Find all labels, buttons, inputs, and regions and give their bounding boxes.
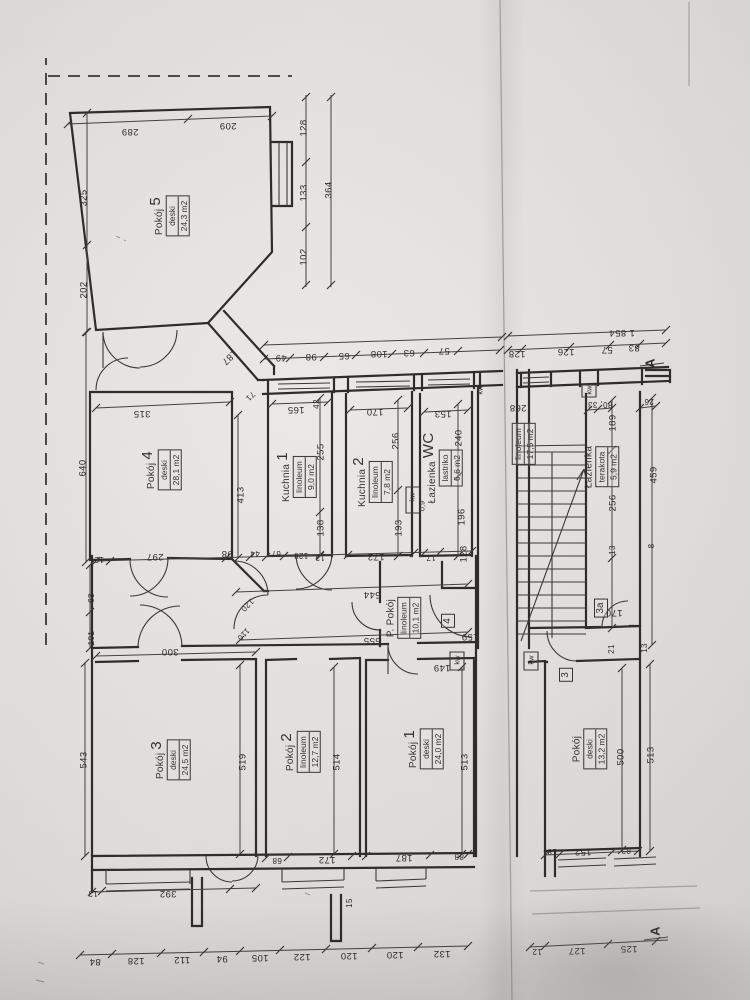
dimension-label: 126 <box>557 346 574 356</box>
plan-labels-layer: 2892091281331023643252023156404131877129… <box>0 0 750 1000</box>
dimension-label: 120 <box>239 597 255 613</box>
dimension-label: 128 <box>127 955 144 965</box>
dimension-label: 544 <box>363 589 380 599</box>
dimension-label: 202 <box>79 281 89 298</box>
dimension-label: 112 <box>174 954 190 964</box>
dimension-label: 543 <box>79 751 89 768</box>
dimension-label: 63 <box>88 593 96 603</box>
dimension-label: 68 <box>272 856 282 864</box>
room-name: Łazienka <box>584 446 594 488</box>
dimension-label: 640 <box>78 459 88 476</box>
dimension-label: 84 <box>89 956 100 966</box>
room-name: Pokój4 <box>142 450 157 491</box>
room-label-kuchnia-1: Kuchnia1linoleum9,0 m2 <box>277 452 318 502</box>
room-label-pokoj-4: Pokój4deski28,1 m2 <box>142 450 183 491</box>
room-name-text: Pokój <box>146 463 157 490</box>
room-area: 24,0 m2 <box>431 730 443 769</box>
dimension-label: 513 <box>646 746 656 763</box>
room-info-box: linoleum12,7 m2 <box>297 731 321 773</box>
dimension-label: 133 <box>299 184 309 201</box>
room-area: 17,5 m2 <box>523 424 535 464</box>
dimension-label: 315 <box>133 408 150 418</box>
room-floor-type: deski <box>584 730 595 769</box>
dimension-label: 110 <box>235 626 251 642</box>
dimension-label: 17 <box>426 553 436 561</box>
room-info-box: terakota5,9 m2 <box>595 447 619 488</box>
dimension-label: 152 <box>574 846 591 856</box>
room-info-box: lastriko6,6 m2 <box>439 450 463 487</box>
room-floor-type: deski <box>167 197 178 236</box>
room-label-pokoj-parter: Pokójdeski13,2 m2 <box>572 729 608 770</box>
room-floor-type: deski <box>168 741 179 780</box>
dimension-label: 153 <box>434 408 451 418</box>
dimension-label: 172 <box>318 854 335 864</box>
dimension-label: 13 <box>88 889 98 897</box>
dimension-label: 65 <box>338 350 349 360</box>
vent-shaft-label: kw <box>476 385 484 394</box>
dimension-label: 57 <box>601 344 612 354</box>
dimension-label: 128 <box>508 348 525 358</box>
room-floor-type: terakota <box>596 448 607 487</box>
room-label-lazienka-terakota: Łazienkaterakota5,9 m2 <box>584 446 620 488</box>
room-label-lazienka-wc: ŁazienkaWClastriko6,6 m2 <box>423 432 464 503</box>
room-name: P. Pokój <box>386 597 396 639</box>
section-marker: A <box>649 926 662 936</box>
vent-shaft-label: kw <box>408 492 416 501</box>
room-number: 2 <box>278 733 295 742</box>
dimension-label: 514 <box>332 753 342 770</box>
room-label-kuchnia-2: Kuchnia2linoleum7,8 m2 <box>353 457 394 507</box>
dimension-label: 519 <box>238 753 248 770</box>
room-area: 13,2 m2 <box>595 730 607 769</box>
dimension-label: 122 <box>293 951 310 961</box>
dimension-label: 26 <box>644 397 654 405</box>
room-label-pokoj-3: Pokój3deski24,5 m2 <box>151 740 192 781</box>
room-info-box: deski24,5 m2 <box>167 740 191 781</box>
room-number: 1 <box>401 730 418 739</box>
dimension-label: 132 <box>433 948 450 958</box>
dimension-label: 42 <box>313 399 321 409</box>
room-name-text: Pokój <box>408 742 419 769</box>
dimension-label: 138 <box>316 519 326 536</box>
room-number: 3 <box>148 741 165 750</box>
room-info-box: deski13,2 m2 <box>583 729 607 770</box>
room-info-box: deski24,0 m2 <box>420 729 444 770</box>
dimension-label: 196 <box>457 508 467 525</box>
dimension-label: 102 <box>299 248 309 265</box>
vent-shaft-label: kw <box>453 655 461 664</box>
dimension-label: 149 <box>433 662 450 672</box>
dimension-label: 44 <box>250 549 260 557</box>
room-label-pokoj-1: Pokój1deski24,0 m2 <box>404 729 445 770</box>
dimension-label: 500 <box>616 748 626 765</box>
room-floor-type: linoleum <box>398 598 409 638</box>
room-name-text: Pokój <box>285 745 296 772</box>
room-area: 9,0 m2 <box>304 457 316 497</box>
room-info-box: linoleum9,0 m2 <box>293 456 317 498</box>
room-area: 24,5 m2 <box>178 741 190 780</box>
dimension-label: 13 <box>315 553 325 561</box>
dimension-label: 459 <box>649 466 659 483</box>
room-name-text: Pokój <box>155 753 166 780</box>
room-name-text: Łazienka <box>583 446 594 488</box>
dimension-label: 128 <box>459 545 469 562</box>
room-floor-type: deski <box>421 730 432 769</box>
dimension-label: 15 <box>346 898 354 908</box>
dimension-label: 172 <box>367 551 384 561</box>
dimension-label: 67 <box>271 549 281 557</box>
room-number: 1 <box>274 452 291 461</box>
dimension-label: 18 <box>547 847 557 855</box>
dimension-label: 120 <box>340 950 357 960</box>
room-name-text: Kuchnia <box>281 464 292 502</box>
dimension-label: 170 <box>366 406 383 416</box>
room-floor-type: linoleum <box>294 457 305 497</box>
dimension-label: 268 <box>509 402 526 412</box>
dimension-label: 49 <box>275 352 286 362</box>
room-name-text: Kuchnia <box>357 469 368 507</box>
dimension-label: 187 <box>220 348 239 367</box>
dimension-label: 170 <box>605 607 622 617</box>
room-name: ŁazienkaWC <box>423 432 438 503</box>
dimension-label: 94 <box>216 953 227 963</box>
unit-number-marker: 3 <box>559 668 573 682</box>
dimension-label: 98 <box>305 351 316 361</box>
dimension-label: 13 <box>641 643 649 653</box>
dimension-label: 128 <box>299 119 309 136</box>
room-name-text: Łazienka <box>427 461 438 503</box>
dimension-label: 187 <box>395 852 412 862</box>
dimension-label: 120 <box>386 949 403 959</box>
room-number: 5 <box>147 197 164 206</box>
room-floor-type: linoleum <box>370 462 381 502</box>
dimension-label: 12 <box>532 947 542 955</box>
dimension-label: 159 <box>461 631 478 641</box>
dimension-label: 209 <box>219 120 236 130</box>
section-marker: A <box>644 358 657 368</box>
dimension-label: 255 <box>316 443 326 460</box>
room-number: 4 <box>139 451 156 460</box>
room-floor-type: lastriko <box>440 451 451 486</box>
room-label-pokoj-5: Pokój5deski24,3 m2 <box>150 196 191 237</box>
room-number: WC <box>420 432 437 458</box>
room-name: Pokój5 <box>150 196 165 237</box>
dimension-label: 300 <box>161 646 178 656</box>
dimension-label: 88 <box>454 852 464 860</box>
room-floor-type: linoleum <box>298 732 309 772</box>
room-area: 12,7 m2 <box>308 732 320 772</box>
dimension-label: 364 <box>324 181 334 198</box>
room-label-p-pokoj: P. Pokójlinoleum10,1 m2 <box>386 597 422 639</box>
dimension-label: 80, 33 <box>588 400 613 408</box>
dimension-label: 12 <box>94 555 104 563</box>
dimension-label: 193 <box>394 519 404 536</box>
dimension-label: 513 <box>460 753 470 770</box>
room-info-box: linoleum7,8 m2 <box>369 461 393 503</box>
dimension-label: 21 <box>608 644 616 654</box>
room-name: Kuchnia2 <box>353 457 368 507</box>
room-name: Pokój1 <box>404 729 419 770</box>
dimension-label: 98 <box>221 548 232 558</box>
dimension-label: 105 <box>251 952 268 962</box>
room-number: 2 <box>350 457 367 466</box>
dimension-label: 128 <box>294 551 309 559</box>
unit-number-marker: 4 <box>441 614 455 628</box>
dimension-label: 189 <box>608 414 618 431</box>
room-name: Pokój3 <box>151 740 166 781</box>
room-info-box: deski28,1 m2 <box>158 450 182 491</box>
dimension-label: 297 <box>146 551 163 561</box>
dimension-label: 256 <box>391 432 401 449</box>
dimension-label: 165 <box>287 404 304 414</box>
dimension-label: 392 <box>159 888 176 898</box>
dimension-label: 83 <box>628 342 639 352</box>
room-name-text: Pokój <box>154 209 165 236</box>
dimension-label: 108 <box>370 348 387 358</box>
dimension-label: 125 <box>620 943 637 953</box>
room-floor-type: deski <box>159 451 170 490</box>
room-area: 24,3 m2 <box>177 197 189 236</box>
room-label-pokoj-2: Pokój2linoleum12,7 m2 <box>281 731 322 773</box>
room-area: 7,8 m2 <box>380 462 392 502</box>
dimension-label: 127 <box>568 945 585 955</box>
dimension-label: 555 <box>363 635 380 645</box>
dimension-label: 8 <box>648 544 656 549</box>
dimension-label: 289 <box>121 126 138 136</box>
room-info-box: linoleum10,1 m2 <box>397 597 421 639</box>
room-info-box: linoleum17,5 m2 <box>512 423 536 465</box>
room-area: 6,6 m2 <box>450 451 462 486</box>
dimension-label: 1 854 <box>609 327 635 337</box>
dimension-label: 71 <box>244 390 257 403</box>
dimension-label: 13 <box>609 545 617 555</box>
room-area: 5,9 m2 <box>607 448 619 487</box>
room-name-text: Pokój <box>571 736 582 763</box>
dimension-label: 63 <box>403 347 414 357</box>
unit-number-marker: 3a <box>594 598 608 617</box>
room-area: 28,1 m2 <box>169 451 181 490</box>
vent-shaft-label: kw <box>527 655 535 664</box>
room-label-klatka: linoleum17,5 m2 <box>512 423 537 465</box>
room-name-text: P. Pokój <box>385 599 396 637</box>
dimension-label: 101 <box>88 631 96 646</box>
room-area: 10,1 m2 <box>409 598 421 638</box>
dimension-label: 413 <box>236 486 246 503</box>
dimension-label: 325 <box>79 189 89 206</box>
room-floor-type: linoleum <box>513 424 524 464</box>
dimension-label: 57 <box>438 345 449 355</box>
scanned-floor-plan-photo: 2892091281331023643252023156404131877129… <box>0 0 750 1000</box>
room-name: Kuchnia1 <box>277 452 292 502</box>
room-name: Pokój2 <box>281 731 296 773</box>
vent-shaft-label: kw <box>585 385 593 394</box>
dimension-label: 256 <box>608 494 618 511</box>
dimension-label: 83 <box>621 846 631 854</box>
room-name: Pokój <box>572 729 582 770</box>
room-info-box: deski24,3 m2 <box>166 196 190 237</box>
